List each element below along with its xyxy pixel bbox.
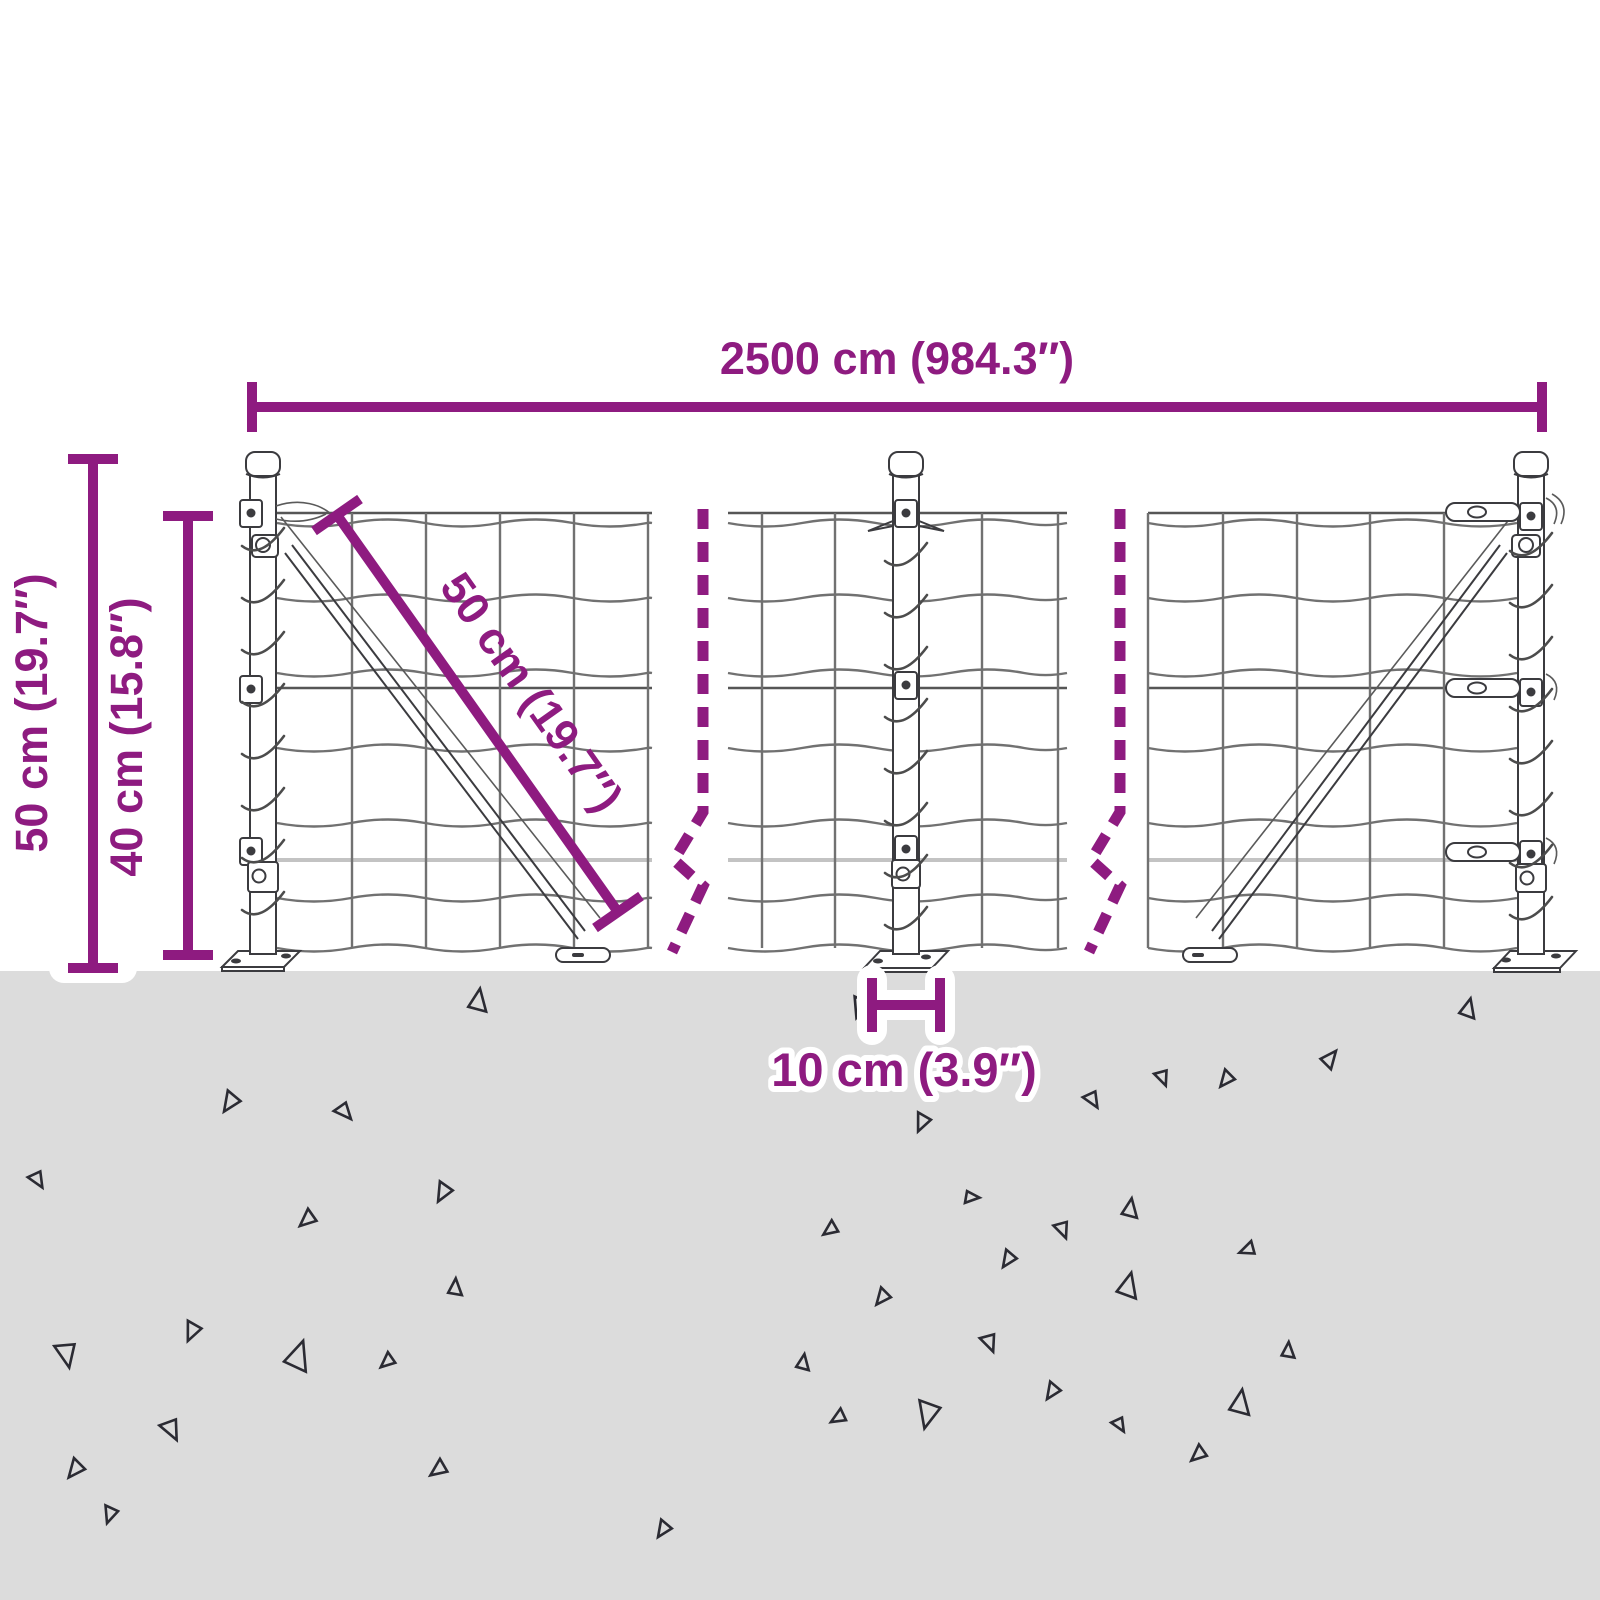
break-line-left xyxy=(672,509,703,952)
total-height-dimension-label: 50 cm (19.7″) xyxy=(6,573,57,852)
dimension-diagonal: 50 cm (19.7″) xyxy=(314,499,641,928)
dimension-width: 2500 cm (984.3″) xyxy=(252,333,1542,432)
depth-dimension-label: 10 cm (3.9″) xyxy=(771,1043,1036,1096)
width-dimension-label: 2500 cm (984.3″) xyxy=(720,333,1074,384)
tension-bars xyxy=(1446,494,1564,864)
fence-post-right xyxy=(1446,452,1576,972)
fence-post-middle xyxy=(864,452,948,972)
break-line-right xyxy=(1089,509,1120,952)
mesh-height-dimension-label: 40 cm (15.8″) xyxy=(101,597,152,876)
fence-dimension-diagram: 2500 cm (984.3″) 50 cm (19.7″) 40 cm (15… xyxy=(0,0,1600,1600)
dimension-mesh-height: 40 cm (15.8″) xyxy=(101,516,213,955)
